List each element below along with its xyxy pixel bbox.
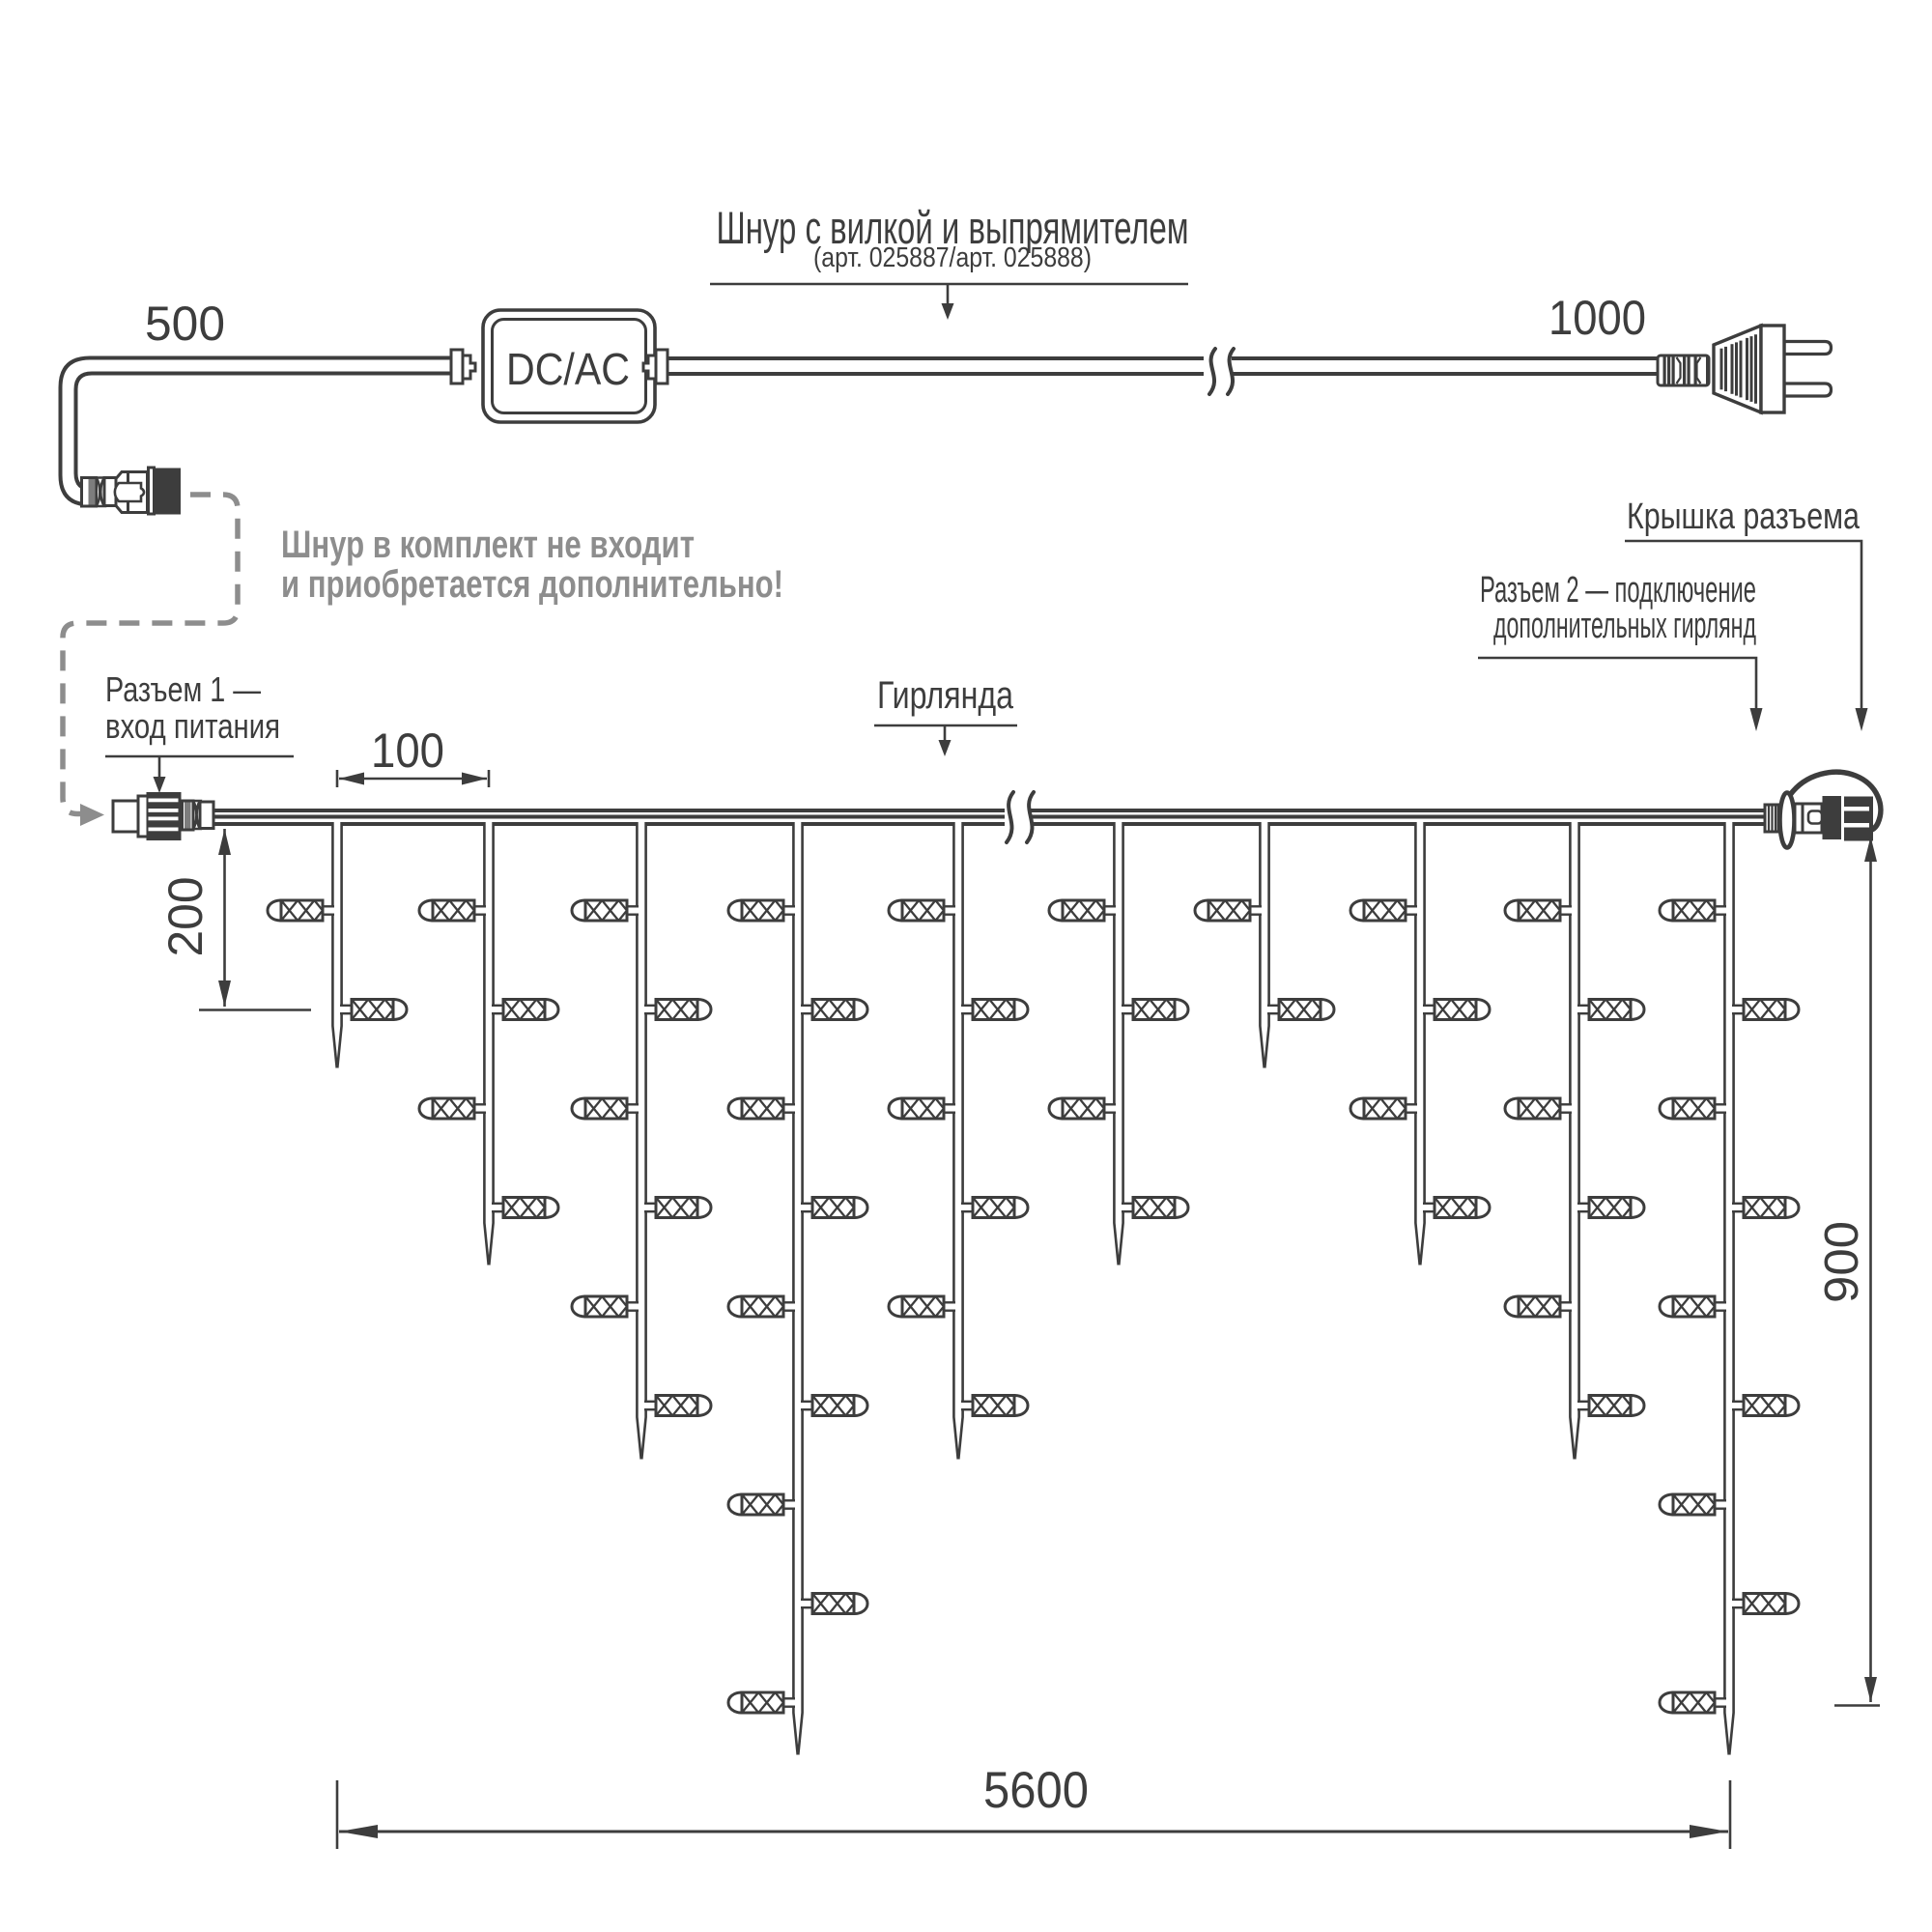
svg-text:5600: 5600: [983, 1762, 1089, 1819]
svg-text:500: 500: [145, 297, 225, 351]
svg-text:Гирлянда: Гирлянда: [877, 674, 1014, 717]
svg-text:DC/AC: DC/AC: [506, 344, 630, 394]
svg-text:Разъем 2 — подключение: Разъем 2 — подключение: [1480, 570, 1756, 611]
svg-text:дополнительных гирлянд: дополнительных гирлянд: [1493, 606, 1756, 646]
svg-text:Шнур в комплект не входит: Шнур в комплект не входит: [281, 524, 695, 566]
svg-text:и приобретается дополнительно!: и приобретается дополнительно!: [281, 563, 783, 606]
svg-text:900: 900: [1816, 1221, 1868, 1303]
svg-text:Крышка разъема: Крышка разъема: [1627, 497, 1861, 537]
svg-text:100: 100: [371, 724, 444, 778]
svg-text:1000: 1000: [1548, 291, 1646, 345]
svg-text:(арт. 025887/арт. 025888): (арт. 025887/арт. 025888): [813, 242, 1092, 273]
svg-text:Разъем 1 —: Разъем 1 —: [105, 669, 261, 709]
svg-text:вход питания: вход питания: [105, 706, 280, 746]
svg-text:200: 200: [158, 877, 213, 957]
